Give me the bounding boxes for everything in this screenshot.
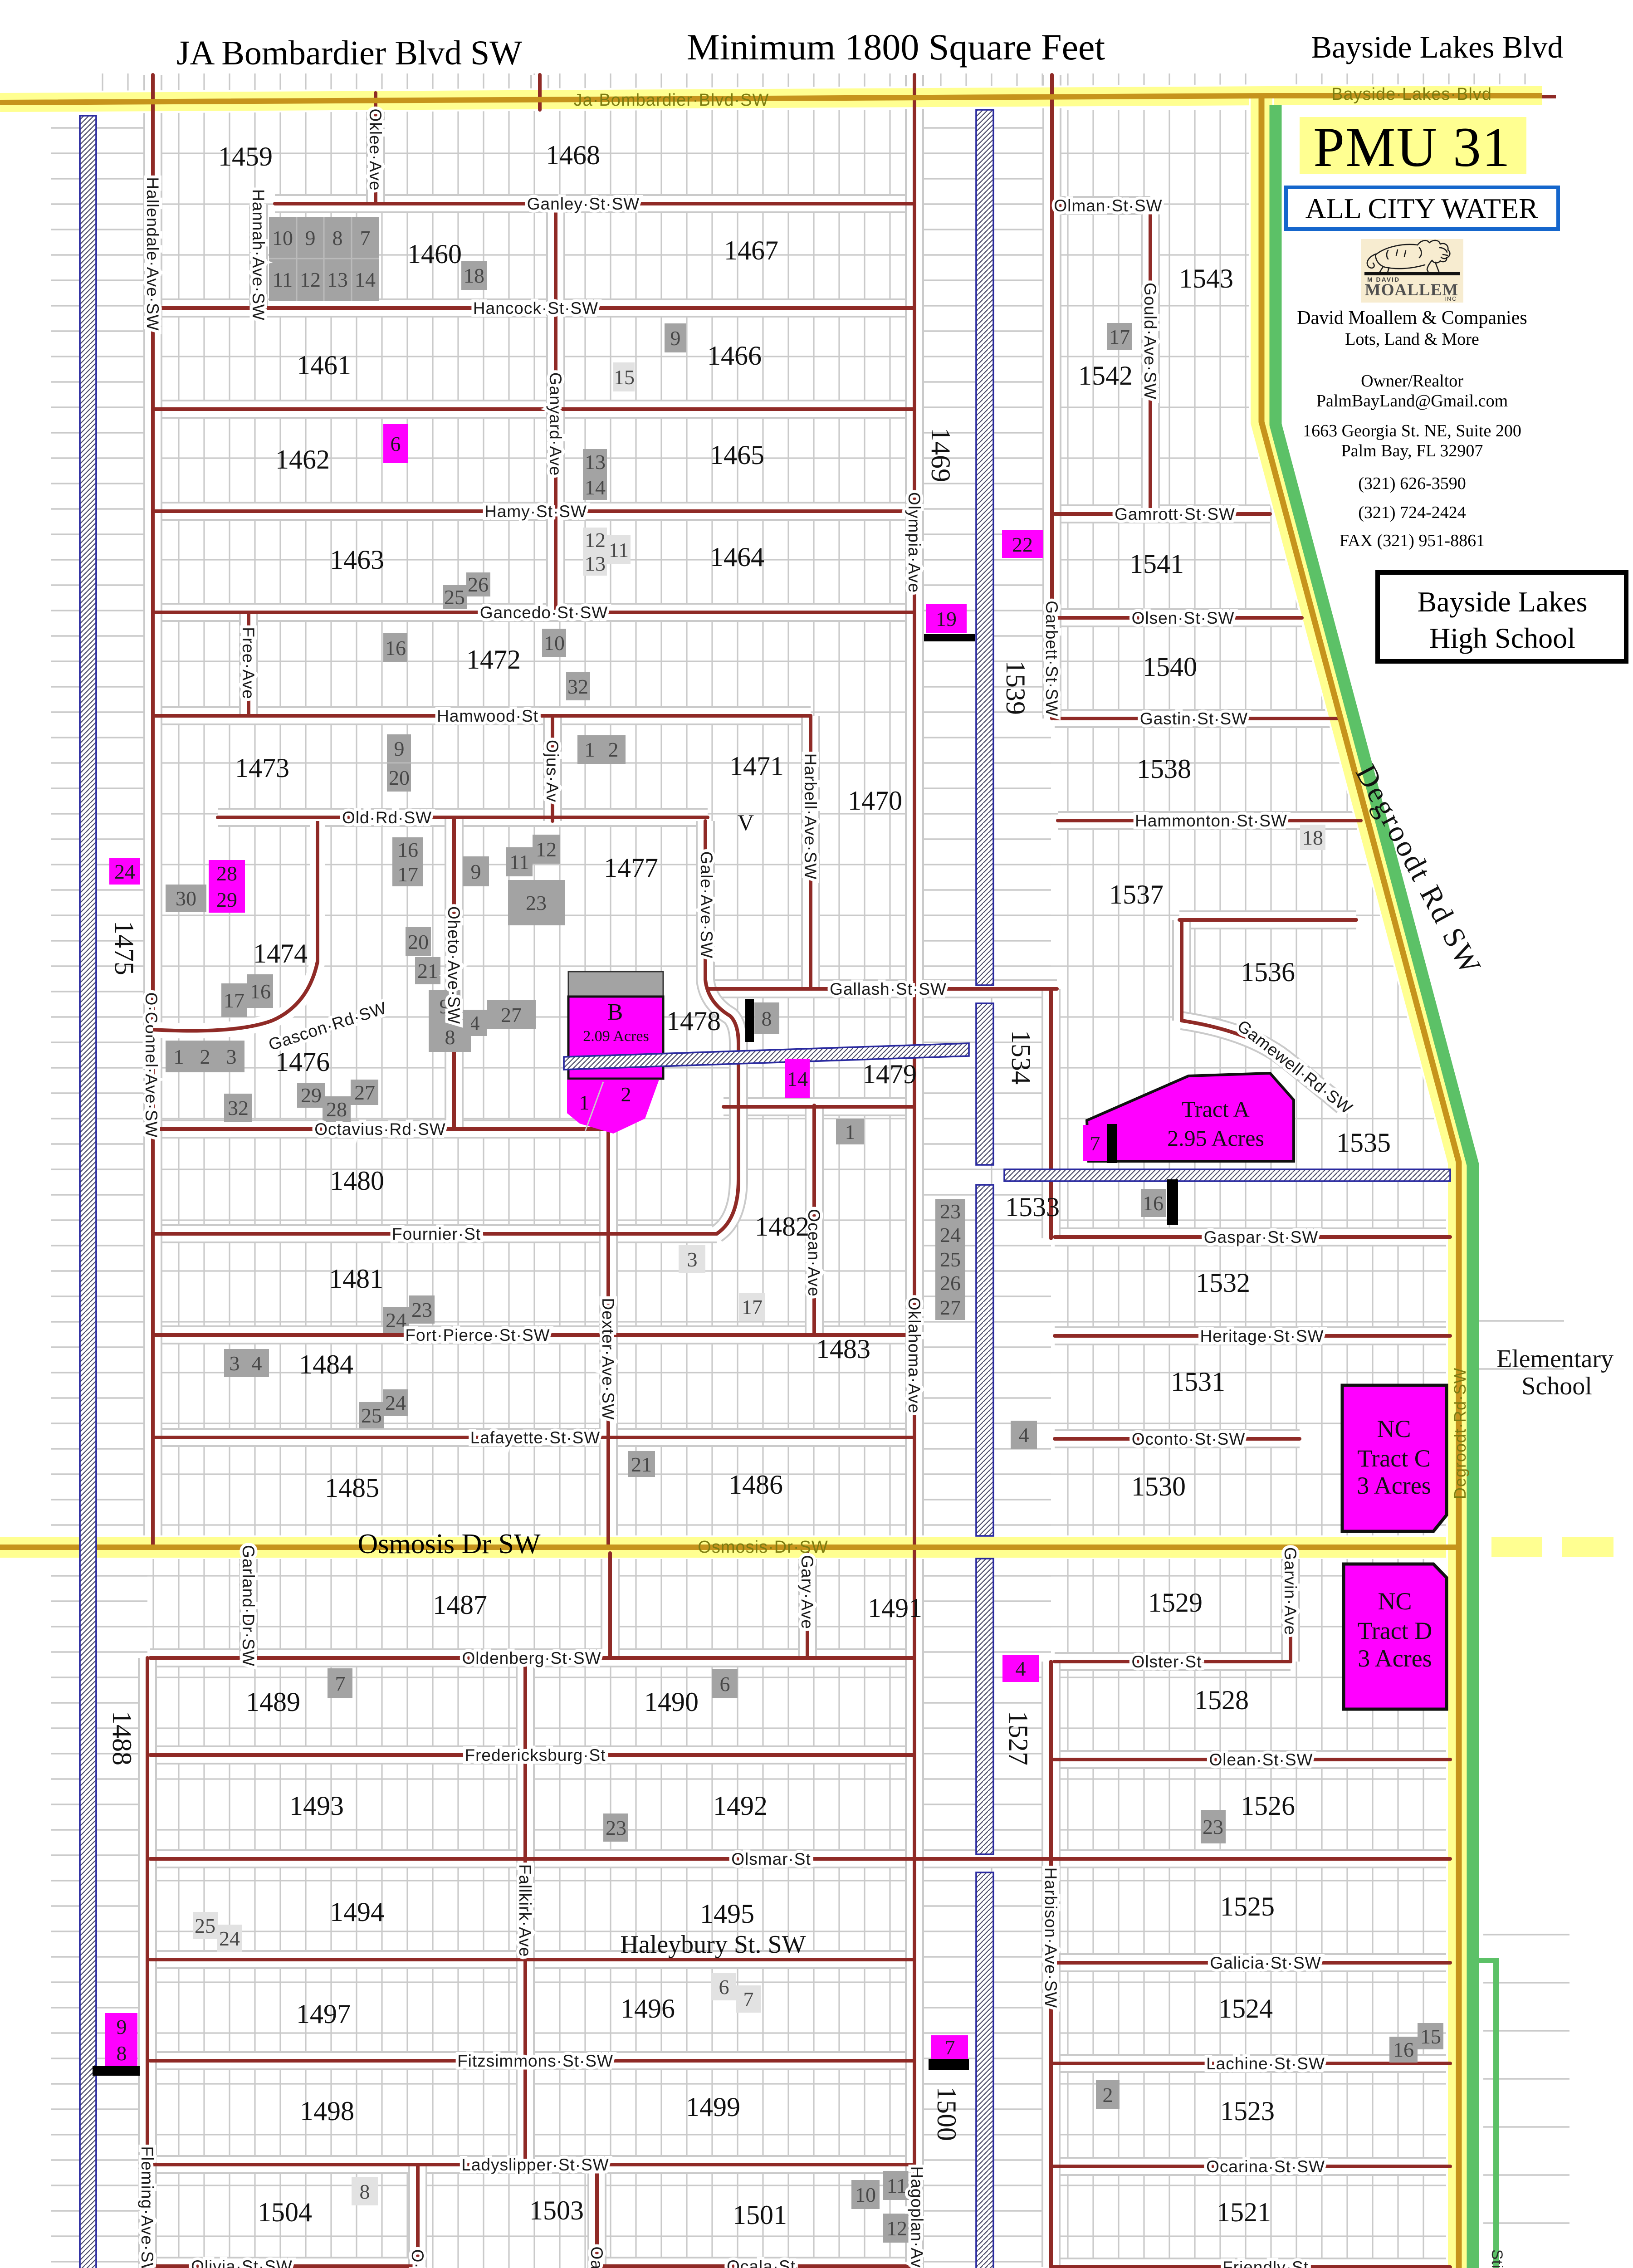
svg-text:Olman·St·SW: Olman·St·SW	[1054, 196, 1162, 215]
svg-text:1500: 1500	[932, 2087, 962, 2141]
svg-text:22: 22	[1012, 533, 1033, 556]
svg-text:Garland·Dr·SW: Garland·Dr·SW	[239, 1545, 258, 1667]
svg-text:14: 14	[355, 268, 376, 291]
svg-text:PMU 31: PMU 31	[1313, 116, 1511, 178]
svg-text:23: 23	[940, 1200, 961, 1223]
svg-text:26: 26	[468, 573, 489, 596]
svg-text:15: 15	[614, 366, 635, 389]
svg-text:Palm Bay, FL 32907: Palm Bay, FL 32907	[1341, 441, 1483, 460]
svg-text:1: 1	[585, 738, 595, 761]
svg-text:1523: 1523	[1220, 2096, 1275, 2126]
svg-text:Fleming·Ave·SW: Fleming·Ave·SW	[138, 2146, 156, 2268]
svg-text:9: 9	[117, 2015, 127, 2038]
svg-text:Old·Rd·SW: Old·Rd·SW	[342, 808, 432, 827]
svg-text:1534: 1534	[1006, 1030, 1036, 1085]
svg-text:Haleybury St. SW: Haleybury St. SW	[620, 1931, 806, 1959]
svg-text:26: 26	[940, 1271, 961, 1295]
svg-text:1536: 1536	[1241, 957, 1295, 987]
svg-text:Olympia·Ave: Olympia·Ave	[905, 492, 924, 593]
svg-text:4: 4	[252, 1352, 262, 1375]
svg-text:28: 28	[216, 862, 237, 885]
svg-text:20: 20	[408, 930, 429, 953]
svg-text:1663 Georgia St. NE, Suite 200: 1663 Georgia St. NE, Suite 200	[1303, 421, 1521, 440]
svg-text:23: 23	[606, 1816, 626, 1839]
svg-text:3: 3	[226, 1045, 237, 1068]
svg-text:1: 1	[579, 1091, 590, 1114]
svg-text:20: 20	[389, 766, 410, 789]
svg-text:1494: 1494	[330, 1897, 384, 1927]
svg-text:1481: 1481	[329, 1264, 383, 1294]
svg-text:10: 10	[855, 2183, 876, 2206]
svg-text:V: V	[738, 810, 754, 835]
svg-text:Osmosis Dr SW: Osmosis Dr SW	[357, 1529, 541, 1559]
svg-text:7: 7	[743, 1988, 754, 2011]
svg-text:Tract D: Tract D	[1358, 1617, 1433, 1644]
svg-text:1535: 1535	[1336, 1128, 1391, 1158]
svg-text:Olsmar·St: Olsmar·St	[731, 1850, 811, 1868]
svg-text:Free·Ave: Free·Ave	[239, 627, 258, 699]
svg-text:1477: 1477	[604, 853, 658, 883]
svg-text:23: 23	[411, 1298, 432, 1321]
svg-text:1488: 1488	[107, 1711, 137, 1765]
svg-text:Garvin·Ave: Garvin·Ave	[1281, 1547, 1300, 1635]
svg-text:17: 17	[742, 1295, 763, 1319]
svg-text:Stillwater·Lakes·Dr: Stillwater·Lakes·Dr	[1488, 2249, 1506, 2268]
svg-text:Fort·Pierce·St·SW: Fort·Pierce·St·SW	[405, 1326, 550, 1344]
svg-text:Harbison·Ave·SW: Harbison·Ave·SW	[1041, 1867, 1060, 2008]
svg-text:School: School	[1521, 1372, 1592, 1400]
svg-text:PalmBayLand@Gmail.com: PalmBayLand@Gmail.com	[1316, 391, 1508, 411]
svg-text:1473: 1473	[235, 753, 289, 783]
svg-text:Heritage·St·SW: Heritage·St·SW	[1200, 1327, 1324, 1345]
svg-text:Friendly·St: Friendly·St	[1222, 2258, 1309, 2268]
svg-text:Ja·Bombardier·Blvd·SW: Ja·Bombardier·Blvd·SW	[574, 91, 769, 110]
svg-text:Hamwood·St: Hamwood·St	[437, 707, 538, 725]
svg-text:Ladyslipper·St·SW: Ladyslipper·St·SW	[461, 2156, 609, 2174]
svg-text:18: 18	[464, 264, 484, 287]
svg-text:28: 28	[326, 1098, 347, 1121]
svg-text:16: 16	[250, 980, 271, 1003]
svg-text:1496: 1496	[621, 1994, 675, 2024]
svg-text:Gallash·St·SW: Gallash·St·SW	[830, 980, 947, 998]
svg-text:1487: 1487	[433, 1590, 487, 1620]
svg-text:8: 8	[445, 1026, 455, 1049]
svg-text:3 Acres: 3 Acres	[1358, 1645, 1432, 1672]
svg-text:Gary·Ave: Gary·Ave	[798, 1555, 816, 1629]
svg-text:Lafayette·St·SW: Lafayette·St·SW	[470, 1428, 600, 1447]
svg-text:13: 13	[585, 552, 606, 575]
svg-text:8: 8	[360, 2180, 370, 2203]
svg-text:Olster·St: Olster·St	[1132, 1652, 1202, 1671]
svg-text:Harbell·Ave·SW: Harbell·Ave·SW	[801, 753, 820, 880]
svg-text:1490: 1490	[644, 1687, 699, 1717]
svg-text:Oconto·St·SW: Oconto·St·SW	[1132, 1430, 1246, 1448]
svg-text:27: 27	[354, 1081, 375, 1104]
svg-text:23: 23	[1203, 1815, 1223, 1838]
svg-text:2.95 Acres: 2.95 Acres	[1167, 1125, 1264, 1151]
svg-text:17: 17	[397, 863, 418, 886]
svg-text:1: 1	[174, 1045, 184, 1068]
svg-text:6: 6	[391, 432, 401, 455]
svg-text:1543: 1543	[1179, 264, 1233, 293]
svg-text:8: 8	[117, 2042, 127, 2065]
svg-text:Ganyard·Ave: Ganyard·Ave	[546, 372, 565, 476]
svg-text:15: 15	[1420, 2025, 1441, 2048]
svg-text:Gould·Ave·SW: Gould·Ave·SW	[1141, 283, 1159, 400]
svg-text:1540: 1540	[1143, 652, 1197, 682]
svg-text:1493: 1493	[289, 1791, 344, 1821]
svg-text:1491: 1491	[868, 1593, 922, 1623]
svg-text:(321) 724-2424: (321) 724-2424	[1358, 503, 1466, 522]
svg-text:1495: 1495	[700, 1899, 754, 1929]
svg-text:8: 8	[332, 226, 343, 249]
svg-text:1: 1	[845, 1120, 856, 1144]
svg-text:Elementary: Elementary	[1496, 1345, 1613, 1373]
svg-text:3: 3	[687, 1248, 698, 1271]
svg-text:Minimum 1800 Square Feet: Minimum 1800 Square Feet	[687, 26, 1105, 68]
svg-text:1463: 1463	[330, 545, 384, 575]
svg-text:1529: 1529	[1148, 1588, 1203, 1618]
svg-text:1485: 1485	[325, 1473, 379, 1503]
svg-text:3 Acres: 3 Acres	[1357, 1472, 1431, 1499]
svg-text:12: 12	[585, 528, 606, 552]
svg-text:13: 13	[585, 450, 606, 474]
svg-text:INC: INC	[1444, 295, 1457, 302]
svg-text:9: 9	[394, 737, 405, 760]
svg-text:1460: 1460	[407, 239, 462, 269]
svg-text:Osmosis·Dr·SW: Osmosis·Dr·SW	[698, 1538, 828, 1557]
svg-text:Octavius·Rd·SW: Octavius·Rd·SW	[314, 1120, 445, 1139]
svg-text:6: 6	[720, 1672, 730, 1696]
svg-text:1466: 1466	[707, 341, 762, 371]
svg-text:Tract A: Tract A	[1182, 1096, 1250, 1122]
svg-text:7: 7	[360, 226, 371, 249]
svg-text:10: 10	[544, 631, 565, 655]
svg-text:Lots, Land & More: Lots, Land & More	[1345, 330, 1479, 349]
svg-text:1524: 1524	[1218, 1994, 1273, 2024]
svg-text:Ocala·St: Ocala·St	[727, 2257, 796, 2268]
svg-text:2: 2	[200, 1045, 210, 1068]
svg-text:10: 10	[272, 226, 293, 249]
svg-text:Oheto·Ave·SW: Oheto·Ave·SW	[445, 906, 463, 1024]
svg-text:Galicia·St·SW: Galicia·St·SW	[1210, 1954, 1321, 1972]
svg-text:1538: 1538	[1137, 754, 1191, 784]
svg-text:25: 25	[195, 1914, 215, 1937]
svg-text:23: 23	[526, 891, 547, 914]
svg-text:Oklahoma·Ave: Oklahoma·Ave	[905, 1297, 924, 1413]
svg-text:11: 11	[887, 2174, 907, 2197]
svg-text:1464: 1464	[710, 542, 764, 572]
svg-text:21: 21	[631, 1453, 652, 1476]
svg-text:(321) 626-3590: (321) 626-3590	[1358, 474, 1466, 493]
svg-text:Tract C: Tract C	[1357, 1445, 1431, 1472]
svg-text:30: 30	[176, 887, 196, 910]
svg-text:17: 17	[1109, 325, 1130, 348]
svg-text:FAX (321) 951-8861: FAX (321) 951-8861	[1340, 531, 1485, 550]
svg-text:B: B	[607, 999, 623, 1025]
svg-text:1472: 1472	[466, 645, 521, 675]
svg-text:1501: 1501	[733, 2200, 787, 2230]
svg-text:4: 4	[1016, 1657, 1026, 1680]
svg-text:Olean·St·SW: Olean·St·SW	[1209, 1750, 1313, 1769]
svg-text:24: 24	[940, 1223, 961, 1246]
svg-text:1479: 1479	[862, 1059, 917, 1089]
svg-text:NC: NC	[1378, 1588, 1412, 1615]
svg-text:6: 6	[719, 1975, 729, 1999]
svg-text:Hallendale·Ave·SW: Hallendale·Ave·SW	[143, 177, 162, 331]
svg-text:High School: High School	[1429, 622, 1575, 654]
svg-text:2.09 Acres: 2.09 Acres	[583, 1028, 649, 1045]
svg-text:Oldenberg·St·SW: Oldenberg·St·SW	[462, 1649, 601, 1667]
svg-text:Bayside·Lakes·Blvd: Bayside·Lakes·Blvd	[1331, 85, 1492, 104]
svg-text:13: 13	[327, 268, 348, 291]
svg-text:17: 17	[224, 989, 244, 1012]
svg-text:19: 19	[936, 607, 957, 631]
svg-text:O·Connel·Ave·SW: O·Connel·Ave·SW	[142, 992, 161, 1138]
svg-text:27: 27	[501, 1003, 522, 1026]
svg-text:24: 24	[219, 1927, 240, 1950]
svg-text:21: 21	[417, 959, 438, 982]
svg-text:1470: 1470	[848, 786, 902, 816]
svg-text:9: 9	[305, 226, 316, 249]
svg-text:1465: 1465	[710, 440, 764, 470]
svg-text:1483: 1483	[816, 1334, 870, 1364]
svg-text:1474: 1474	[253, 938, 308, 968]
svg-text:Ganley·St·SW: Ganley·St·SW	[527, 195, 640, 213]
svg-text:12: 12	[536, 838, 557, 861]
svg-text:Degroodt·Rd·SW: Degroodt·Rd·SW	[1451, 1368, 1469, 1499]
svg-text:2: 2	[1103, 2083, 1113, 2107]
svg-text:Bayside Lakes: Bayside Lakes	[1418, 586, 1588, 618]
svg-text:1532: 1532	[1196, 1268, 1250, 1298]
svg-text:2: 2	[621, 1083, 631, 1106]
svg-text:7: 7	[945, 2036, 955, 2059]
svg-text:11: 11	[273, 268, 293, 291]
svg-text:1537: 1537	[1109, 880, 1164, 909]
svg-text:1527: 1527	[1003, 1711, 1033, 1765]
svg-text:Owner/Realtor: Owner/Realtor	[1361, 371, 1463, 391]
svg-text:Ocarina·St·SW: Ocarina·St·SW	[1206, 2157, 1325, 2176]
svg-text:1461: 1461	[297, 350, 351, 380]
svg-text:Hannah·Ave·SW: Hannah·Ave·SW	[249, 189, 268, 321]
svg-text:Olsen·St·SW: Olsen·St·SW	[1132, 609, 1235, 627]
svg-text:1533: 1533	[1005, 1192, 1060, 1222]
svg-text:18: 18	[1302, 826, 1323, 849]
svg-text:1498: 1498	[300, 2096, 354, 2126]
svg-text:Fournier·St: Fournier·St	[392, 1225, 481, 1243]
svg-text:2: 2	[608, 738, 619, 761]
svg-text:1478: 1478	[666, 1006, 721, 1036]
svg-text:ALL CITY WATER: ALL CITY WATER	[1305, 192, 1538, 225]
svg-text:Fallkirk·Ave: Fallkirk·Ave	[516, 1864, 534, 1957]
svg-text:Oasis·Ave: Oasis·Ave	[587, 2247, 606, 2268]
svg-text:1459: 1459	[218, 142, 273, 171]
svg-text:16: 16	[397, 838, 418, 861]
svg-text:7: 7	[1090, 1132, 1100, 1155]
svg-text:Gaspar·St·SW: Gaspar·St·SW	[1204, 1228, 1319, 1246]
svg-text:Lachine·St·SW: Lachine·St·SW	[1206, 2054, 1325, 2073]
svg-text:14: 14	[787, 1067, 808, 1090]
svg-text:1486: 1486	[728, 1470, 783, 1500]
svg-text:32: 32	[228, 1096, 249, 1119]
svg-text:1530: 1530	[1131, 1471, 1186, 1501]
svg-text:NC: NC	[1377, 1415, 1411, 1442]
svg-text:9: 9	[670, 327, 681, 350]
svg-text:JA Bombardier Blvd SW: JA Bombardier Blvd SW	[176, 34, 522, 72]
svg-text:Gale·Ave·SW: Gale·Ave·SW	[697, 851, 716, 959]
svg-text:1542: 1542	[1078, 361, 1133, 391]
svg-text:Hancock·St·SW: Hancock·St·SW	[473, 299, 598, 318]
svg-text:12: 12	[300, 268, 321, 291]
svg-text:Hamy·St·SW: Hamy·St·SW	[484, 502, 587, 521]
svg-text:1497: 1497	[296, 1999, 351, 2029]
svg-text:Fitzsimmons·St·SW: Fitzsimmons·St·SW	[457, 2052, 613, 2070]
svg-text:1492: 1492	[713, 1791, 768, 1821]
svg-text:1525: 1525	[1220, 1892, 1275, 1921]
svg-text:Fredericksburg·St: Fredericksburg·St	[464, 1746, 606, 1765]
svg-text:25: 25	[361, 1404, 382, 1427]
svg-text:11: 11	[509, 850, 529, 874]
svg-text:32: 32	[567, 675, 588, 698]
svg-text:1462: 1462	[275, 445, 330, 474]
svg-text:4: 4	[1019, 1423, 1029, 1447]
svg-text:1469: 1469	[926, 428, 956, 482]
svg-text:1476: 1476	[275, 1047, 330, 1077]
svg-text:1489: 1489	[246, 1687, 300, 1717]
svg-text:14: 14	[585, 476, 606, 499]
svg-text:O·Hara·Ave: O·Hara·Ave	[408, 2249, 427, 2268]
svg-text:24: 24	[385, 1391, 406, 1414]
svg-text:1531: 1531	[1171, 1367, 1225, 1397]
svg-text:1482: 1482	[755, 1212, 809, 1242]
svg-text:7: 7	[335, 1672, 346, 1695]
svg-text:1480: 1480	[330, 1166, 384, 1196]
svg-text:29: 29	[301, 1084, 322, 1107]
svg-text:1475: 1475	[109, 921, 139, 975]
svg-text:Bayside Lakes Blvd: Bayside Lakes Blvd	[1311, 30, 1563, 64]
svg-text:24: 24	[386, 1309, 406, 1332]
svg-text:8: 8	[762, 1007, 772, 1030]
svg-text:1526: 1526	[1241, 1791, 1295, 1821]
svg-text:1499: 1499	[686, 2092, 740, 2122]
svg-text:27: 27	[940, 1296, 961, 1319]
svg-text:1468: 1468	[546, 140, 600, 170]
svg-text:1484: 1484	[299, 1349, 353, 1379]
svg-text:9: 9	[471, 860, 481, 883]
svg-text:1467: 1467	[724, 235, 778, 265]
svg-text:Garbett·St·SW: Garbett·St·SW	[1042, 601, 1061, 717]
svg-text:3: 3	[230, 1352, 240, 1375]
svg-text:Ojus·Av: Ojus·Av	[543, 740, 562, 802]
svg-text:25: 25	[444, 586, 465, 609]
svg-text:Gastin·St·SW: Gastin·St·SW	[1140, 709, 1248, 728]
svg-text:24: 24	[114, 860, 135, 883]
svg-text:25: 25	[940, 1248, 961, 1271]
svg-text:1528: 1528	[1194, 1685, 1249, 1715]
svg-text:Gamrott·St·SW: Gamrott·St·SW	[1115, 505, 1235, 523]
svg-text:11: 11	[609, 538, 629, 562]
svg-text:Hagoplan·Ave·SW: Hagoplan·Ave·SW	[908, 2166, 926, 2268]
svg-text:16: 16	[1143, 1192, 1164, 1215]
svg-text:Oklee·Ave: Oklee·Ave	[366, 108, 385, 191]
svg-text:David Moallem & Companies: David Moallem & Companies	[1297, 308, 1527, 328]
svg-text:Gancedo·St·SW: Gancedo·St·SW	[480, 603, 608, 622]
svg-text:1503: 1503	[529, 2195, 584, 2225]
svg-text:Dexter·Ave·SW: Dexter·Ave·SW	[599, 1298, 617, 1420]
svg-text:Hammonton·St·SW: Hammonton·St·SW	[1135, 811, 1287, 830]
svg-text:1521: 1521	[1217, 2197, 1271, 2227]
svg-text:16: 16	[385, 636, 406, 660]
svg-text:1541: 1541	[1129, 549, 1184, 579]
svg-text:29: 29	[216, 888, 237, 911]
svg-text:1539: 1539	[1001, 660, 1031, 715]
svg-text:Olivia·St·SW: Olivia·St·SW	[191, 2257, 293, 2268]
svg-text:16: 16	[1393, 2038, 1414, 2061]
svg-text:1471: 1471	[729, 751, 784, 781]
svg-text:12: 12	[886, 2217, 907, 2240]
svg-text:1504: 1504	[258, 2197, 312, 2227]
